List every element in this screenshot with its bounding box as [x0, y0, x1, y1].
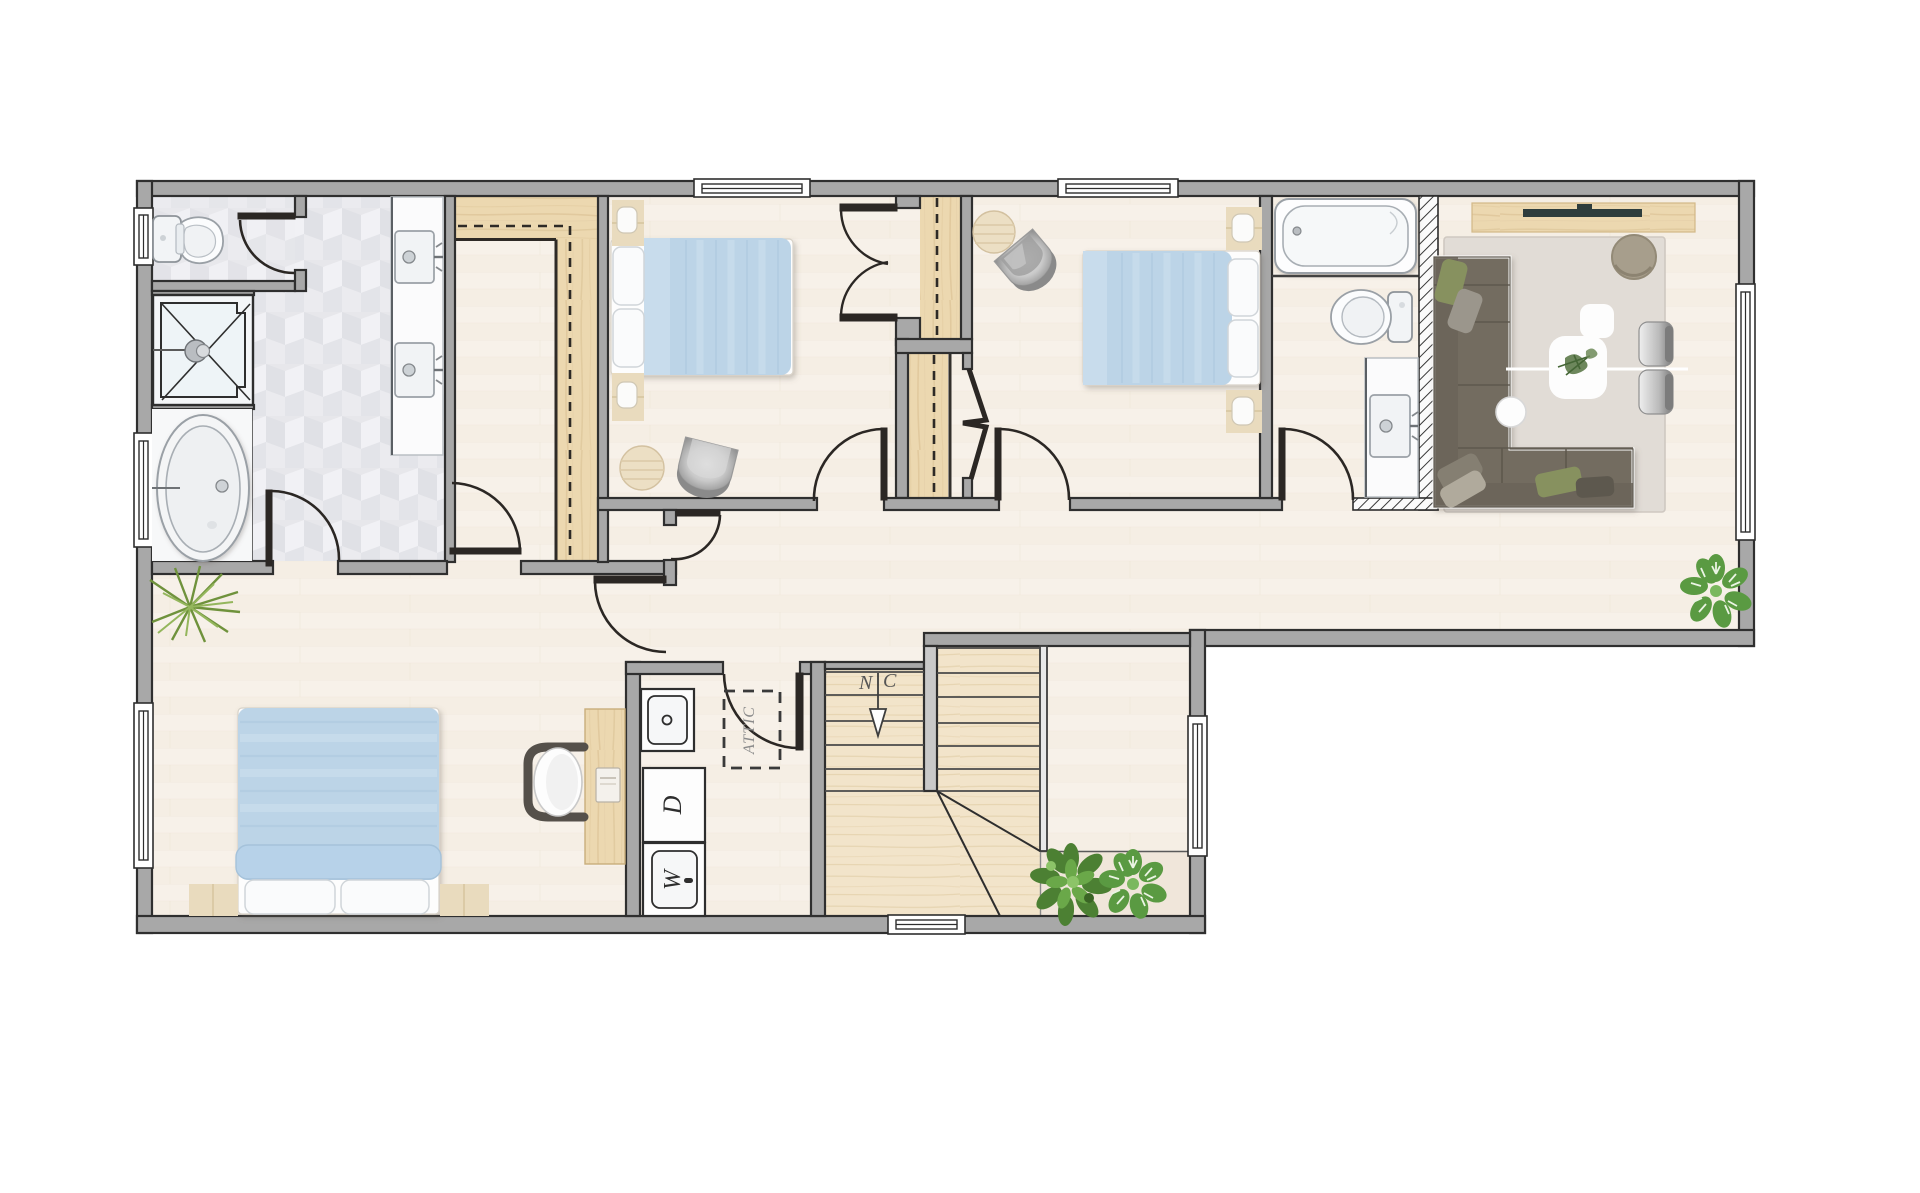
svg-text:ATTIC: ATTIC: [741, 706, 758, 755]
svg-text:N: N: [858, 672, 874, 694]
svg-text:D: D: [658, 795, 687, 815]
svg-text:W: W: [660, 868, 686, 890]
svg-text:C: C: [883, 670, 897, 692]
